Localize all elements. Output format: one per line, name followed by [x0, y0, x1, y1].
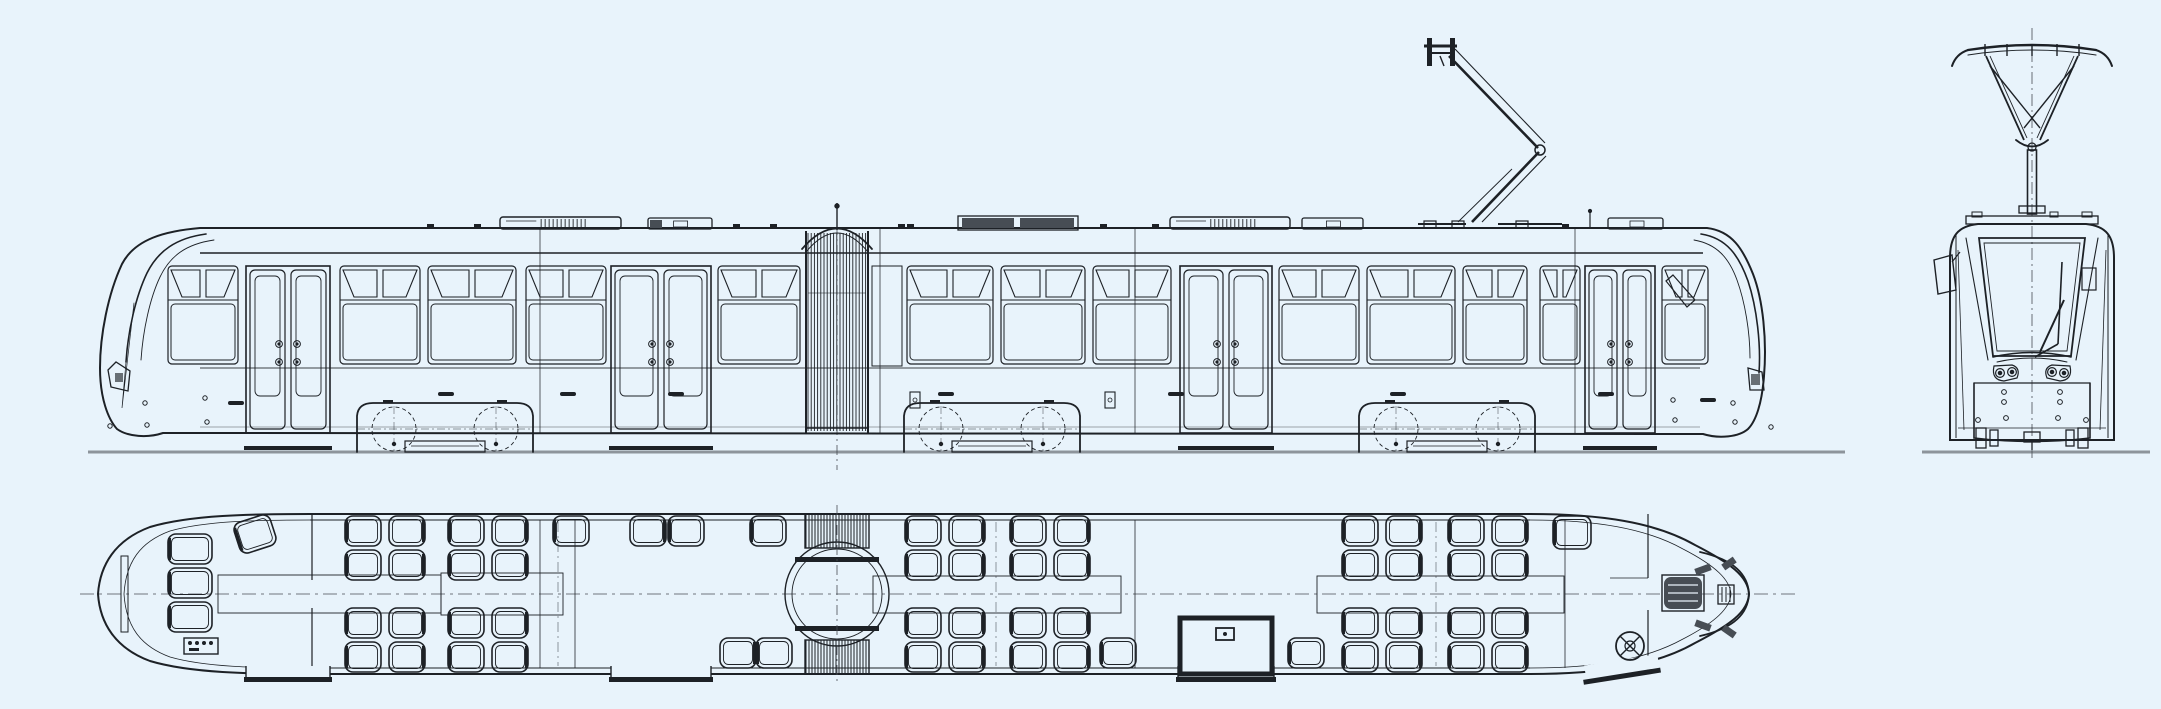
axlebox-dot: [1394, 442, 1398, 446]
door-sill: [1178, 446, 1274, 450]
plan-door: [609, 666, 713, 682]
door-button-dot: [669, 343, 671, 345]
panel-switch: [189, 648, 199, 651]
headlight-left-lamp: [115, 373, 123, 382]
bumper-handle-right: [1700, 398, 1716, 402]
resistor-block: [1020, 218, 1074, 228]
roof-vent: [898, 224, 905, 228]
grab-handle: [938, 392, 954, 396]
blueprint-canvas: [0, 0, 2161, 709]
headlamp-bulb: [2050, 370, 2054, 374]
roof-vent: [1562, 224, 1569, 228]
skirt-clip: [1044, 400, 1054, 403]
skirt-clip: [1499, 400, 1509, 403]
door-sill: [1176, 677, 1276, 682]
headlamp-bulb: [2062, 371, 2066, 375]
door-sill: [244, 677, 332, 682]
door-button-dot: [1234, 361, 1236, 363]
roof-box-cap: [650, 220, 662, 228]
axlebox-dot: [392, 442, 396, 446]
skirt-clip: [930, 400, 940, 403]
dome-finial-ball: [835, 204, 839, 208]
grab-handle: [1168, 392, 1184, 396]
skirt-clip: [383, 400, 393, 403]
headlight-right-lamp: [1751, 374, 1760, 385]
door-button-dot: [1628, 343, 1630, 345]
door-button-dot: [669, 361, 671, 363]
grab-handle: [1390, 392, 1406, 396]
grab-handle: [560, 392, 576, 396]
door-button-dot: [1610, 343, 1612, 345]
axlebox-dot: [494, 442, 498, 446]
panel-dot: [195, 641, 198, 644]
door-button-dot: [278, 361, 280, 363]
panel-dot: [209, 641, 212, 644]
paper-background: [0, 0, 2161, 709]
roof-vent: [907, 224, 914, 228]
skirt-clip: [1385, 400, 1395, 403]
roof-antenna-tip: [1588, 209, 1591, 212]
grab-handle: [438, 392, 454, 396]
door-button-dot: [1234, 343, 1236, 345]
roof-vent: [474, 224, 481, 228]
door-sill: [609, 677, 713, 682]
skirt-clip: [497, 400, 507, 403]
resistor-block: [962, 218, 1014, 228]
axlebox-dot: [1496, 442, 1500, 446]
door-sill: [609, 446, 713, 450]
roof-vent: [1100, 224, 1107, 228]
door-sill: [1583, 446, 1657, 450]
door-button-dot: [296, 361, 298, 363]
headlamp-bulb: [2010, 370, 2014, 374]
door-sill: [244, 446, 332, 450]
axlebox-dot: [939, 442, 943, 446]
bumper-handle-left: [228, 401, 244, 405]
panel-dot: [188, 641, 191, 644]
door-button-dot: [651, 361, 653, 363]
door-button-dot: [1216, 361, 1218, 363]
tram-technical-drawing: [0, 0, 2161, 709]
roof-vent: [1152, 224, 1159, 228]
door-button-dot: [278, 343, 280, 345]
door-button-dot: [1216, 343, 1218, 345]
axlebox-dot: [1041, 442, 1045, 446]
panel-dot: [202, 641, 205, 644]
door-button-dot: [1628, 361, 1630, 363]
headlamp-bulb: [1998, 371, 2002, 375]
door-button-dot: [296, 343, 298, 345]
door-opening: [246, 666, 330, 678]
roof-vent: [427, 224, 434, 228]
roof-vent: [733, 224, 740, 228]
door-button-dot: [651, 343, 653, 345]
roof-vent: [770, 224, 777, 228]
validator-dot: [1224, 633, 1227, 636]
plan-door: [244, 666, 332, 682]
door-opening: [611, 666, 711, 678]
door-button-dot: [1610, 361, 1612, 363]
